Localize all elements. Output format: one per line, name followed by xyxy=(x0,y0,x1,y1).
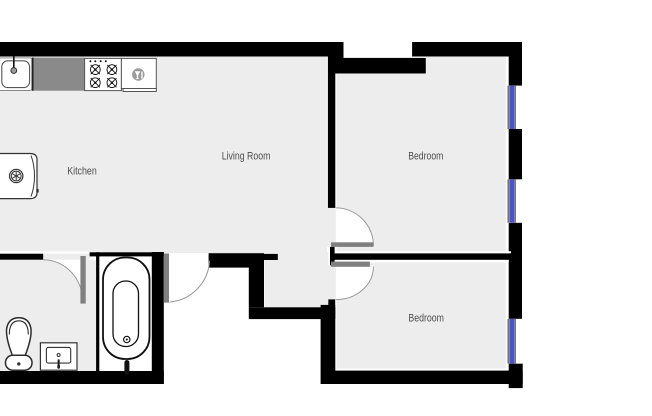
svg-text:Living Room: Living Room xyxy=(222,150,271,162)
svg-text:Bedroom: Bedroom xyxy=(408,313,444,325)
svg-text:Kitchen: Kitchen xyxy=(67,166,97,178)
svg-text:Bedroom: Bedroom xyxy=(408,151,443,163)
